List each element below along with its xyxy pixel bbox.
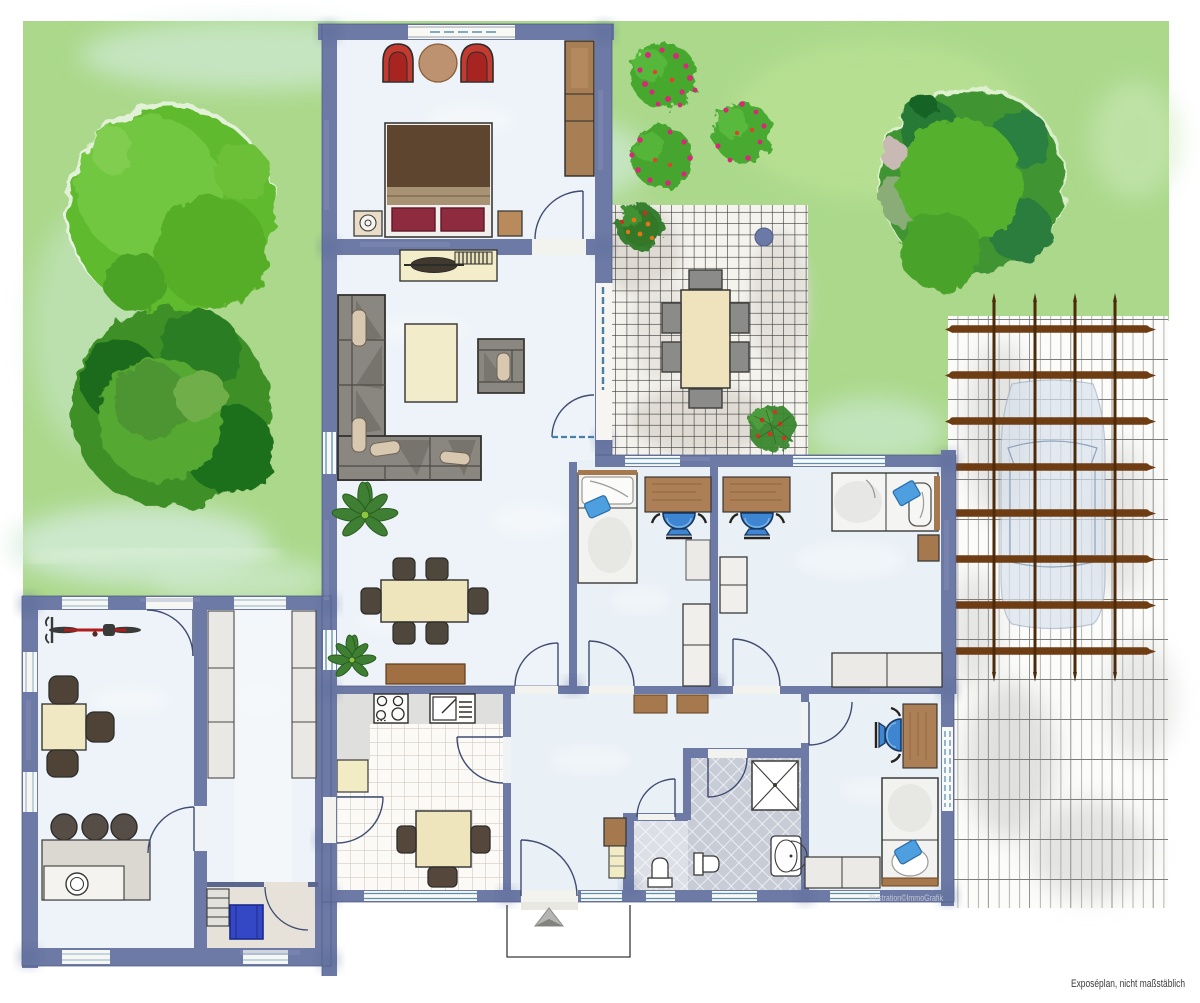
svg-text:Exposéplan, nicht maßstäblich: Exposéplan, nicht maßstäblich	[1071, 978, 1185, 990]
svg-text:Illustration©ImmoGrafik: Illustration©ImmoGrafik	[869, 893, 943, 903]
